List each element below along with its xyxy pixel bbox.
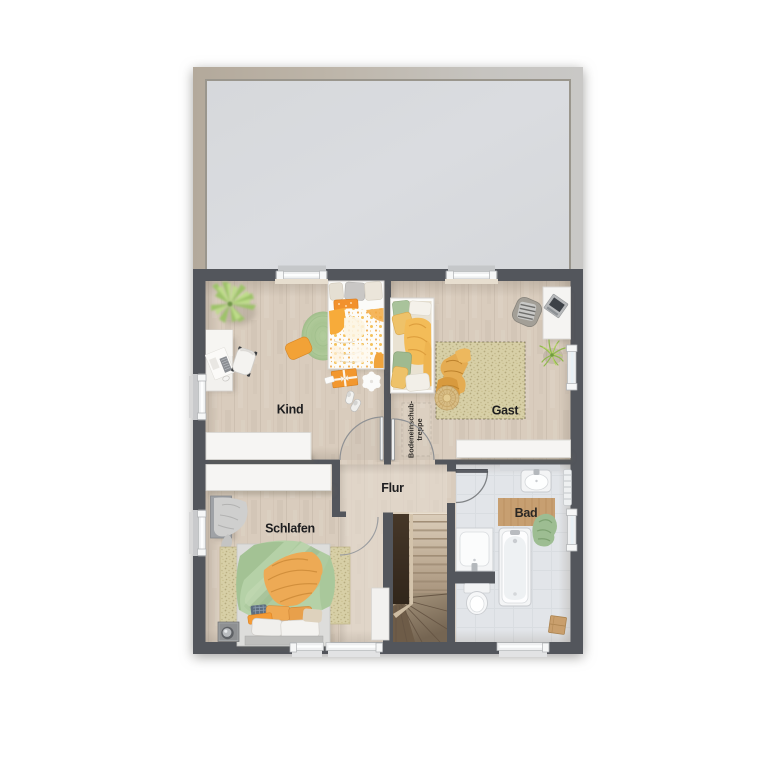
svg-text:Gast: Gast: [492, 404, 520, 418]
svg-text:Kind: Kind: [277, 403, 304, 417]
svg-text:Bad: Bad: [515, 506, 538, 520]
svg-text:Flur: Flur: [381, 481, 404, 495]
svg-text:Schlafen: Schlafen: [265, 522, 315, 536]
